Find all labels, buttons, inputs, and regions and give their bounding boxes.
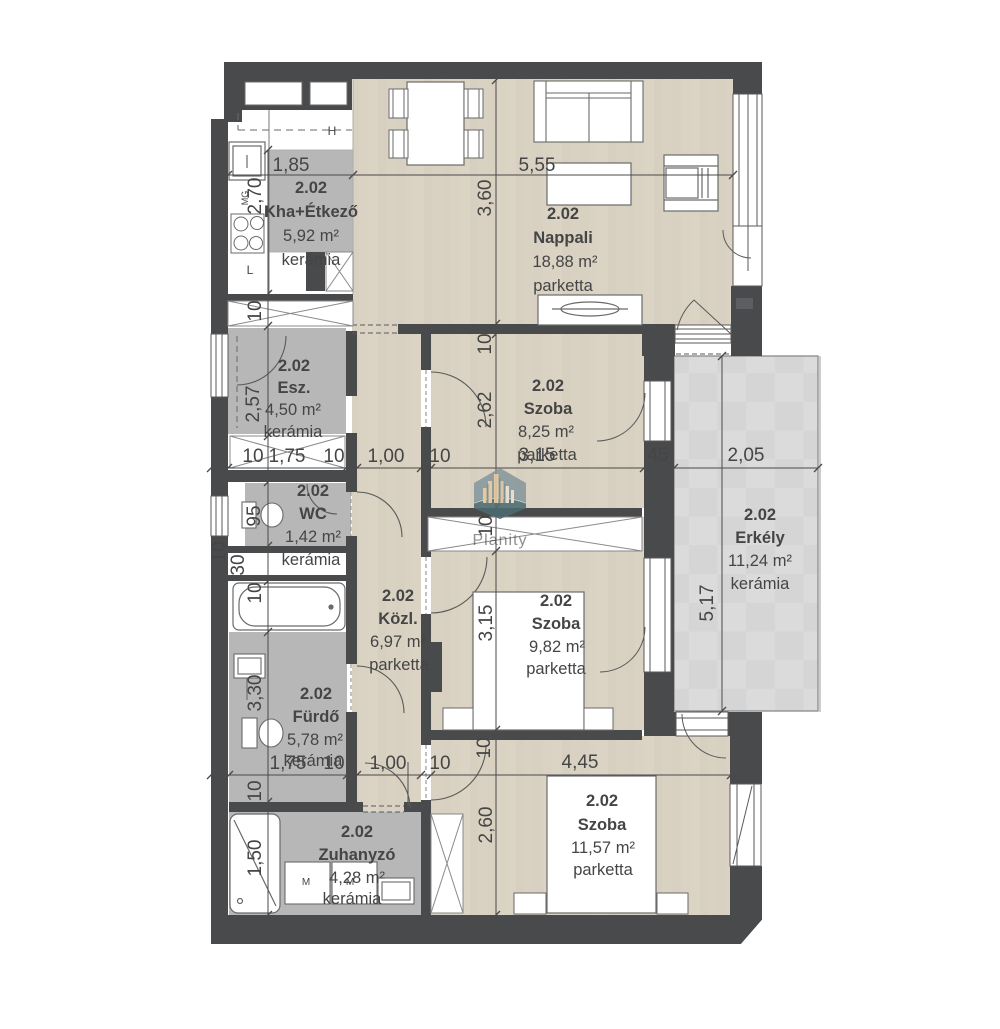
- svg-text:kerámia: kerámia: [282, 551, 342, 569]
- svg-text:10: 10: [245, 780, 266, 801]
- svg-text:3,60: 3,60: [475, 180, 496, 217]
- svg-text:Kha+Étkező: Kha+Étkező: [264, 202, 358, 221]
- svg-text:9,82 m²: 9,82 m²: [529, 638, 585, 656]
- svg-text:parketta: parketta: [526, 660, 586, 678]
- svg-text:10: 10: [245, 300, 266, 321]
- svg-text:Szoba: Szoba: [524, 400, 573, 418]
- svg-text:2.02: 2.02: [532, 377, 564, 395]
- svg-text:11,57 m²: 11,57 m²: [571, 839, 635, 857]
- svg-text:2.02: 2.02: [586, 792, 618, 810]
- svg-text:4,50 m²: 4,50 m²: [265, 401, 321, 419]
- svg-text:2,05: 2,05: [728, 445, 765, 466]
- svg-text:2.02: 2.02: [297, 482, 329, 500]
- svg-text:2,62: 2,62: [475, 392, 496, 429]
- svg-text:45: 45: [647, 445, 668, 466]
- svg-text:10: 10: [429, 446, 450, 467]
- svg-text:Fürdő: Fürdő: [293, 708, 340, 726]
- svg-text:MG: MG: [240, 191, 250, 206]
- svg-text:H: H: [328, 124, 337, 138]
- svg-text:M: M: [302, 877, 310, 888]
- svg-text:5,92 m²: 5,92 m²: [283, 227, 339, 245]
- svg-text:5,78 m²: 5,78 m²: [287, 731, 343, 749]
- svg-text:11,24 m²: 11,24 m²: [728, 552, 792, 570]
- svg-text:Szoba: Szoba: [578, 816, 627, 834]
- svg-text:1,00: 1,00: [370, 753, 407, 774]
- svg-text:2,60: 2,60: [476, 807, 497, 844]
- svg-text:10: 10: [429, 753, 450, 774]
- svg-text:Zuhanyzó: Zuhanyzó: [319, 846, 396, 864]
- svg-text:5,55: 5,55: [519, 155, 556, 176]
- svg-text:3,30: 3,30: [245, 675, 266, 712]
- svg-text:8,25 m²: 8,25 m²: [518, 423, 574, 441]
- svg-text:kerámia: kerámia: [284, 752, 344, 770]
- svg-text:parketta: parketta: [573, 861, 633, 879]
- svg-text:2.02: 2.02: [547, 205, 579, 223]
- svg-text:parketta: parketta: [369, 656, 429, 674]
- svg-text:2.02: 2.02: [300, 685, 332, 703]
- svg-text:kerámia: kerámia: [282, 251, 342, 269]
- svg-text:10: 10: [474, 737, 495, 758]
- svg-text:2.02: 2.02: [382, 587, 414, 605]
- svg-text:1,75: 1,75: [269, 446, 306, 467]
- svg-text:parketta: parketta: [533, 277, 593, 295]
- svg-text:3,15: 3,15: [476, 605, 497, 642]
- svg-text:Planity: Planity: [472, 532, 527, 549]
- svg-text:L: L: [247, 263, 254, 277]
- svg-text:10: 10: [323, 446, 344, 467]
- svg-text:2.02: 2.02: [540, 592, 572, 610]
- svg-text:1,42 m²: 1,42 m²: [285, 528, 341, 546]
- svg-text:18,88 m²: 18,88 m²: [532, 253, 598, 271]
- svg-text:kerámia: kerámia: [264, 423, 324, 441]
- svg-text:WC: WC: [299, 505, 327, 523]
- svg-text:1,00: 1,00: [368, 446, 405, 467]
- svg-text:5,17: 5,17: [697, 585, 718, 622]
- svg-text:kerámia: kerámia: [731, 575, 791, 593]
- svg-text:4,45: 4,45: [562, 752, 599, 773]
- svg-text:Szoba: Szoba: [532, 615, 581, 633]
- svg-text:Erkély: Erkély: [735, 529, 785, 547]
- svg-text:4,28 m²: 4,28 m²: [329, 869, 385, 887]
- svg-text:10: 10: [209, 541, 230, 562]
- svg-text:parketta: parketta: [517, 446, 577, 464]
- svg-text:95: 95: [244, 505, 265, 526]
- svg-text:1,85: 1,85: [273, 155, 310, 176]
- svg-text:kerámia: kerámia: [323, 890, 383, 908]
- svg-text:2.02: 2.02: [341, 823, 373, 841]
- svg-text:1,50: 1,50: [245, 840, 266, 877]
- svg-text:2.02: 2.02: [295, 179, 327, 197]
- svg-text:10: 10: [245, 582, 266, 603]
- svg-text:2,57: 2,57: [243, 386, 264, 423]
- svg-text:M: M: [346, 877, 354, 888]
- svg-text:Esz.: Esz.: [277, 379, 310, 397]
- svg-text:Nappali: Nappali: [533, 229, 593, 247]
- svg-text:30: 30: [228, 554, 249, 575]
- svg-text:2.02: 2.02: [744, 506, 776, 524]
- svg-text:6,97 m²: 6,97 m²: [370, 633, 426, 651]
- svg-text:10: 10: [242, 446, 263, 467]
- svg-text:Közl.: Közl.: [378, 610, 417, 628]
- svg-text:10: 10: [475, 333, 496, 354]
- svg-text:2.02: 2.02: [278, 357, 310, 375]
